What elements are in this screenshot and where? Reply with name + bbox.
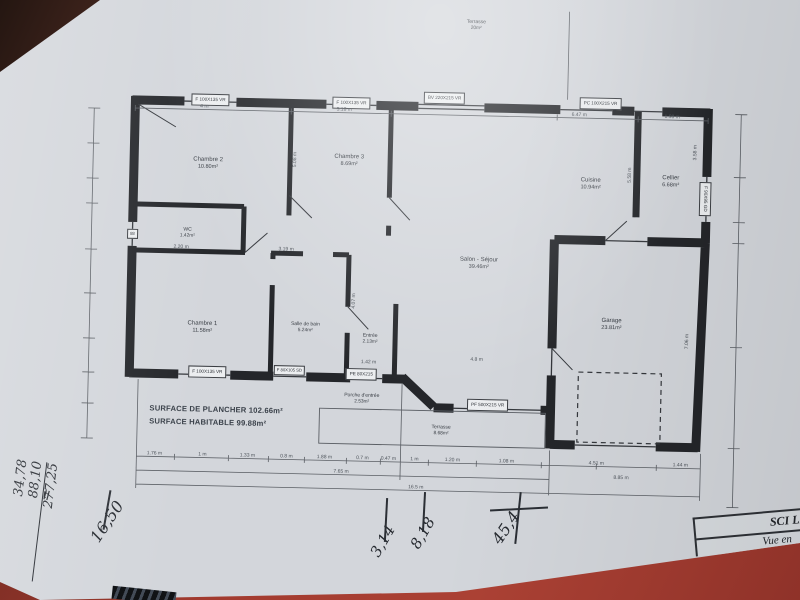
room-area: 8.68m² xyxy=(431,431,450,438)
room-area: 11.58m² xyxy=(187,328,217,336)
room-name: Salle de bain xyxy=(291,321,320,328)
room-label-wc: WC1.42m² xyxy=(180,226,195,240)
room-name: Garage xyxy=(601,318,621,324)
dim-label: 4.8 m xyxy=(470,357,483,363)
room-name: Chambre 2 xyxy=(193,157,223,164)
dim-label: 4 m xyxy=(200,103,208,109)
room-area: 2.13m² xyxy=(362,339,377,346)
room-area: 6.68m² xyxy=(662,182,679,190)
dim-label: 1.08 m xyxy=(499,458,514,464)
dim-label: 1 m xyxy=(410,456,418,462)
room-name: WC xyxy=(183,226,191,232)
room-area: 1.42m² xyxy=(180,233,195,240)
room-name: Entrée xyxy=(363,333,378,339)
room-label-salle-de-bain: Salle de bain5.24m² xyxy=(291,321,320,335)
room-name: Cellier xyxy=(662,175,679,181)
room-area: 10.80m² xyxy=(193,164,223,172)
dim-label: 1.76 m xyxy=(147,450,162,456)
dim-label: 1.98 m xyxy=(665,114,680,120)
dim-label: 16.5 m xyxy=(408,484,423,490)
dim-label: 8.85 m xyxy=(613,475,628,481)
room-label-porche: Porche d'entrée2.53m² xyxy=(344,392,379,406)
dim-label: 1 m xyxy=(198,451,206,457)
room-name: Chambre 3 xyxy=(334,154,364,161)
dim-label: 7.65 m xyxy=(333,469,348,475)
door-label: PC 100X215 VR xyxy=(580,97,622,110)
dim-label: 4.51 m xyxy=(589,460,604,466)
room-label-entree: Entrée2.13m² xyxy=(362,333,377,347)
sliding-bay-label: PF 500X215 VR xyxy=(467,399,508,412)
room-label-cuisine: Cuisine10.94m² xyxy=(580,176,601,192)
window-label: F 100X135 VR xyxy=(188,365,226,377)
dim-label: 0.7 m xyxy=(356,455,369,461)
room-label-chambre1: Chambre 111.58m² xyxy=(187,319,217,335)
dim-label: 1.44 m xyxy=(673,462,688,468)
dim-label: 7.06 m xyxy=(684,334,690,349)
dim-label: 6.47 m xyxy=(572,112,587,118)
room-name: Porche d'entrée xyxy=(344,392,379,399)
dim-label: 5.08 m xyxy=(292,152,298,167)
dim-label: 2.20 m xyxy=(173,244,188,250)
floor-plan-sheet: Chambre 210.80m² Chambre 38.69m² Cuisine… xyxy=(0,0,800,600)
dim-label: 4.07 m xyxy=(351,293,357,308)
dim-label: 3.58 m xyxy=(692,145,698,160)
room-label-cellier: Cellier6.68m² xyxy=(662,174,679,190)
window-label: 88 xyxy=(127,229,138,239)
room-label-chambre2: Chambre 210.80m² xyxy=(193,156,223,172)
room-label-terrasse-sud: Terrasse8.68m² xyxy=(431,424,450,438)
room-name: Salon - Séjour xyxy=(460,257,498,264)
dim-label: 0.8 m xyxy=(280,453,293,459)
room-name: Chambre 1 xyxy=(188,320,218,327)
room-area: 10.94m² xyxy=(580,184,600,192)
room-area: 5.24m² xyxy=(291,328,320,335)
room-area: 20m² xyxy=(467,26,486,33)
window-label: F 90X95 GD xyxy=(699,182,711,216)
room-label-chambre3: Chambre 38.69m² xyxy=(334,153,364,169)
room-area: 39.46m² xyxy=(460,264,498,272)
dim-label: 1.42 m xyxy=(361,359,376,365)
room-name: Terrasse xyxy=(431,424,450,430)
surface-summary: SURFACE DE PLANCHER 102.66m² SURFACE HAB… xyxy=(149,402,283,430)
room-name: Cuisine xyxy=(581,177,601,183)
room-label-terrasse-nord: Terrasse20m² xyxy=(467,19,486,33)
room-label-garage: Garage23.81m² xyxy=(601,317,622,333)
room-area: 8.69m² xyxy=(334,161,364,169)
bay-window-label: BV 220X215 VR xyxy=(424,92,466,105)
room-area: 2.53m² xyxy=(344,399,379,406)
dim-label: 5.58 m xyxy=(627,167,633,182)
room-area: 23.81m² xyxy=(601,325,621,333)
dim-label: 3.19 m xyxy=(278,246,293,252)
dim-label: 1.20 m xyxy=(445,457,460,463)
window-label: F 100X135 VR xyxy=(191,93,229,105)
room-name: Terrasse xyxy=(467,19,486,25)
entry-door-label: PE 80X215 xyxy=(346,368,378,380)
dim-label: 0.47 m xyxy=(381,456,396,462)
dim-label: 5.18 m xyxy=(337,107,352,113)
dim-label: 1.33 m xyxy=(240,452,255,458)
dim-label: 1.88 m xyxy=(317,454,332,460)
photo-of-floor-plan: Chambre 210.80m² Chambre 38.69m² Cuisine… xyxy=(0,0,800,600)
window-label: F 80X105 SD xyxy=(274,365,305,376)
room-label-salon-sejour: Salon - Séjour39.46m² xyxy=(460,256,498,272)
